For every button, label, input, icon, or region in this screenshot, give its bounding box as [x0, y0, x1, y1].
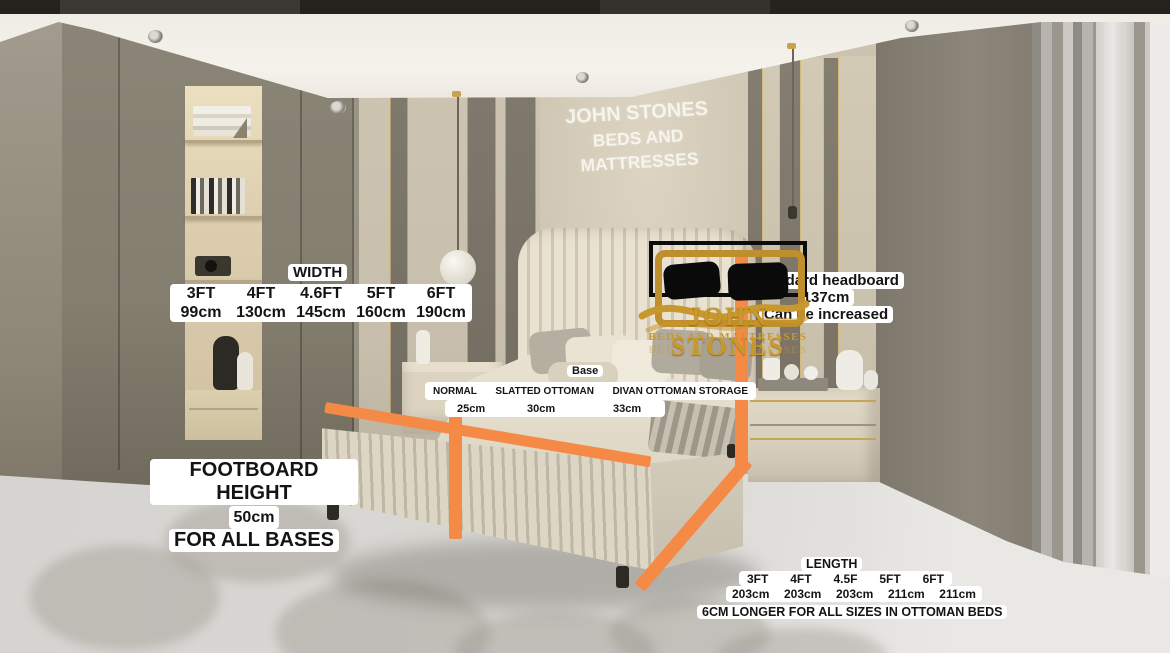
width-ft: 6FT	[412, 285, 470, 303]
length-note: 6CM LONGER FOR ALL SIZES IN OTTOMAN BEDS	[697, 603, 1007, 621]
wardrobe-door-seam	[118, 30, 120, 470]
wall-sign: JOHN STONES BEDS AND MATTRESSES	[535, 94, 741, 180]
base-option-height: 30cm	[527, 403, 555, 415]
camera-lens-icon	[205, 260, 217, 272]
length-ft: 3FT	[747, 572, 768, 586]
pendant-mount-icon	[787, 43, 796, 49]
shelf	[185, 140, 262, 143]
nightstand-vase	[416, 330, 430, 364]
drawer-trim	[750, 400, 876, 402]
pendant-mount-icon	[452, 91, 461, 97]
base-label: Base	[567, 361, 603, 379]
width-cm: 99cm	[172, 304, 230, 322]
width-ft: 3FT	[172, 285, 230, 303]
niche-drawer	[185, 390, 262, 440]
recessed-light-icon	[905, 20, 919, 32]
length-ft-row: 3FT 4FT 4.5F 5FT 6FT	[739, 571, 952, 586]
length-note-text: 6CM LONGER FOR ALL SIZES IN OTTOMAN BEDS	[697, 605, 1007, 619]
footboard-note: FOOTBOARD HEIGHT 50cm FOR ALL BASES	[150, 459, 358, 553]
ceiling-cove-glint	[600, 0, 770, 14]
niche-drawer-groove	[189, 408, 258, 410]
width-table: 3FT 4FT 4.6FT 5FT 6FT 99cm 130cm 145cm 1…	[170, 284, 472, 322]
width-ft: 4.6FT	[292, 285, 350, 303]
base-option-height: 25cm	[457, 403, 485, 415]
footboard-note-line1: FOOTBOARD HEIGHT	[150, 459, 358, 505]
length-cm: 211cm	[888, 587, 925, 601]
footboard-note-line3: FOR ALL BASES	[169, 529, 339, 552]
pendant-lamp	[440, 250, 476, 286]
recessed-light-icon	[330, 101, 346, 114]
sheer-curtain	[1096, 13, 1134, 633]
pendant-bulb-icon	[788, 206, 797, 219]
base-options-row: NORMAL SLATTED OTTOMAN DIVAN OTTOMAN STO…	[425, 382, 756, 400]
recessed-light-icon	[148, 30, 163, 43]
watermark-subtitle-ghost: BEDS AND MATTRESSES	[640, 344, 816, 356]
width-cm: 130cm	[232, 304, 290, 322]
base-option-name: SLATTED OTTOMAN	[495, 386, 594, 397]
measure-line-footboard-height	[449, 413, 462, 539]
base-option-height: 33cm	[613, 403, 641, 415]
width-title-label: WIDTH	[288, 264, 347, 281]
length-title-label: LENGTH	[801, 557, 862, 571]
watermark-subtitle: BEDS AND MATTRESSES	[640, 331, 816, 343]
base-option-name: DIVAN OTTOMAN STORAGE	[612, 386, 748, 397]
base-option-name: NORMAL	[433, 386, 477, 397]
book-row	[191, 178, 245, 214]
vase-dark	[213, 336, 239, 390]
drawer-trim	[750, 438, 876, 440]
width-ft: 4FT	[232, 285, 290, 303]
length-cm: 203cm	[732, 587, 769, 601]
vase-white	[237, 352, 253, 390]
width-cm: 145cm	[292, 304, 350, 322]
width-cm: 190cm	[412, 304, 470, 322]
recessed-light-icon	[576, 72, 589, 83]
width-cm: 160cm	[352, 304, 410, 322]
length-cm: 203cm	[784, 587, 821, 601]
wardrobe-side-panel	[0, 13, 62, 521]
drawer-gap	[750, 424, 876, 426]
length-ft: 5FT	[879, 572, 900, 586]
window-edge	[1150, 0, 1170, 653]
ceiling-cove-glint	[60, 0, 300, 14]
length-cm: 211cm	[939, 587, 976, 601]
decor-ball	[784, 364, 799, 380]
length-ft: 4FT	[790, 572, 811, 586]
base-label-text: Base	[567, 365, 603, 377]
pendant-cord	[457, 96, 459, 252]
bookend	[233, 118, 247, 138]
pendant-cord	[792, 48, 794, 208]
decor-ball	[804, 366, 818, 380]
width-ft: 5FT	[352, 285, 410, 303]
length-ft: 6FT	[923, 572, 944, 586]
bed-foot	[616, 566, 629, 588]
width-title: WIDTH	[288, 264, 347, 282]
length-cm: 203cm	[836, 587, 873, 601]
wall-corner-shadow	[352, 80, 359, 480]
shelf	[185, 280, 262, 283]
decor-sculpture	[864, 370, 878, 390]
footboard-note-line2: 50cm	[229, 506, 280, 529]
shelf-niche	[185, 86, 262, 440]
ceiling-cove	[0, 0, 1170, 14]
shelf	[185, 216, 262, 219]
dresser	[748, 388, 880, 482]
length-cm-row: 203cm 203cm 203cm 211cm 211cm	[726, 586, 982, 602]
decor-sculpture	[836, 350, 863, 390]
bedroom-scene: JOHN STONES BEDS AND MATTRESSES	[0, 0, 1170, 653]
wardrobe-door-seam	[300, 30, 302, 470]
base-heights-row: 25cm 30cm 33cm	[445, 400, 665, 417]
length-ft: 4.5F	[833, 572, 857, 586]
